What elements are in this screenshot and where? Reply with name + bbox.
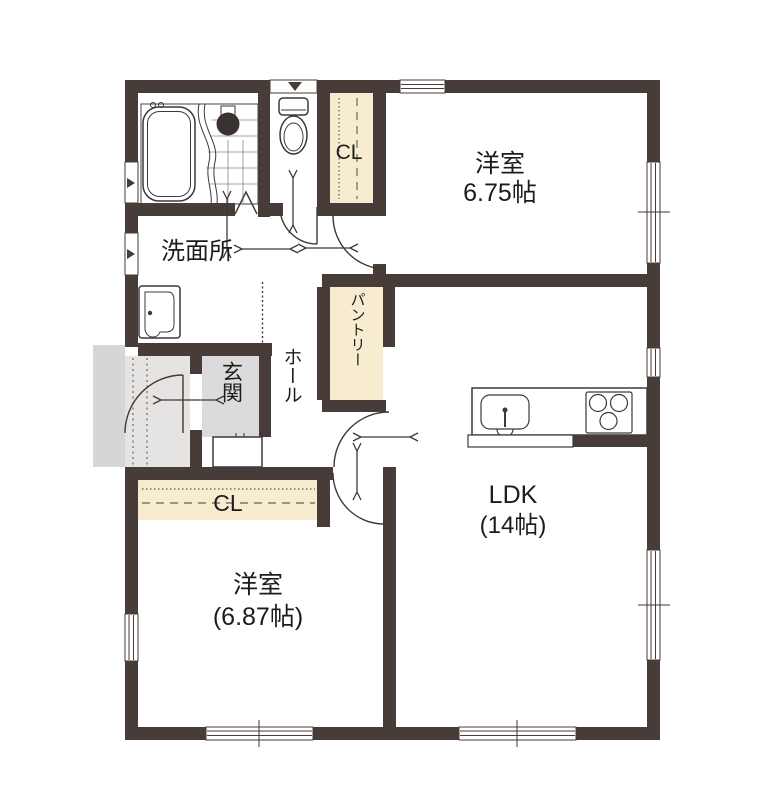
bath-frame bbox=[141, 104, 258, 204]
washbasin bbox=[139, 286, 180, 338]
toilet-tank bbox=[279, 98, 308, 115]
bottom-window-ldk bbox=[459, 720, 576, 747]
label-western-room-bottom-size: (6.87帖) bbox=[213, 603, 303, 631]
right-window-bedroom bbox=[638, 162, 670, 263]
kitchen-stove bbox=[586, 392, 632, 433]
louver-window bbox=[270, 80, 317, 93]
left-window-bath bbox=[125, 162, 138, 203]
toilet-door bbox=[280, 207, 317, 244]
label-hall: ホール bbox=[281, 347, 302, 404]
label-pantry: パントリー bbox=[349, 292, 366, 367]
right-window-ldk bbox=[638, 550, 670, 660]
label-ldk-size: (14帖) bbox=[480, 512, 547, 539]
label-washroom: 洗面所 bbox=[161, 238, 233, 265]
label-western-room-bottom-name: 洋室 bbox=[233, 571, 283, 599]
bedroom-top-door bbox=[333, 216, 386, 269]
label-closet-bottom: CL bbox=[213, 490, 243, 516]
ldk-door bbox=[334, 412, 389, 467]
label-western-room-top-name: 洋室 bbox=[475, 150, 525, 178]
wash-stool-icon bbox=[217, 106, 240, 136]
counter-front bbox=[468, 435, 573, 447]
shower-curtain-line bbox=[198, 104, 217, 203]
shoe-cabinet bbox=[213, 433, 262, 467]
porch-floor bbox=[93, 345, 125, 467]
bottom-window-bedroom bbox=[206, 720, 313, 747]
counter-halfwall bbox=[573, 435, 660, 447]
top-window bbox=[400, 80, 445, 93]
floorplan-svg: 洋室 6.75帖 CL 洗面所 ホール 玄関 パントリー CL 洋室 (6.87… bbox=[0, 0, 768, 812]
left-window-washroom bbox=[125, 233, 138, 275]
bath-folding-door bbox=[235, 192, 257, 214]
label-entrance: 玄関 bbox=[220, 361, 243, 403]
bathroom bbox=[141, 103, 258, 205]
label-western-room-top-size: 6.75帖 bbox=[463, 179, 537, 207]
floorplan-canvas: 洋室 6.75帖 CL 洗面所 ホール 玄関 パントリー CL 洋室 (6.87… bbox=[0, 0, 768, 812]
right-window-kitchen bbox=[647, 348, 660, 377]
bathtub bbox=[143, 103, 195, 202]
toilet bbox=[279, 98, 308, 154]
label-closet-top: CL bbox=[336, 141, 363, 164]
bedroom-bottom-door bbox=[333, 473, 384, 524]
left-window-bedroom bbox=[125, 614, 138, 661]
label-ldk-name: LDK bbox=[489, 481, 538, 509]
entry-alcove-floor bbox=[125, 356, 190, 467]
kitchen bbox=[468, 388, 660, 447]
